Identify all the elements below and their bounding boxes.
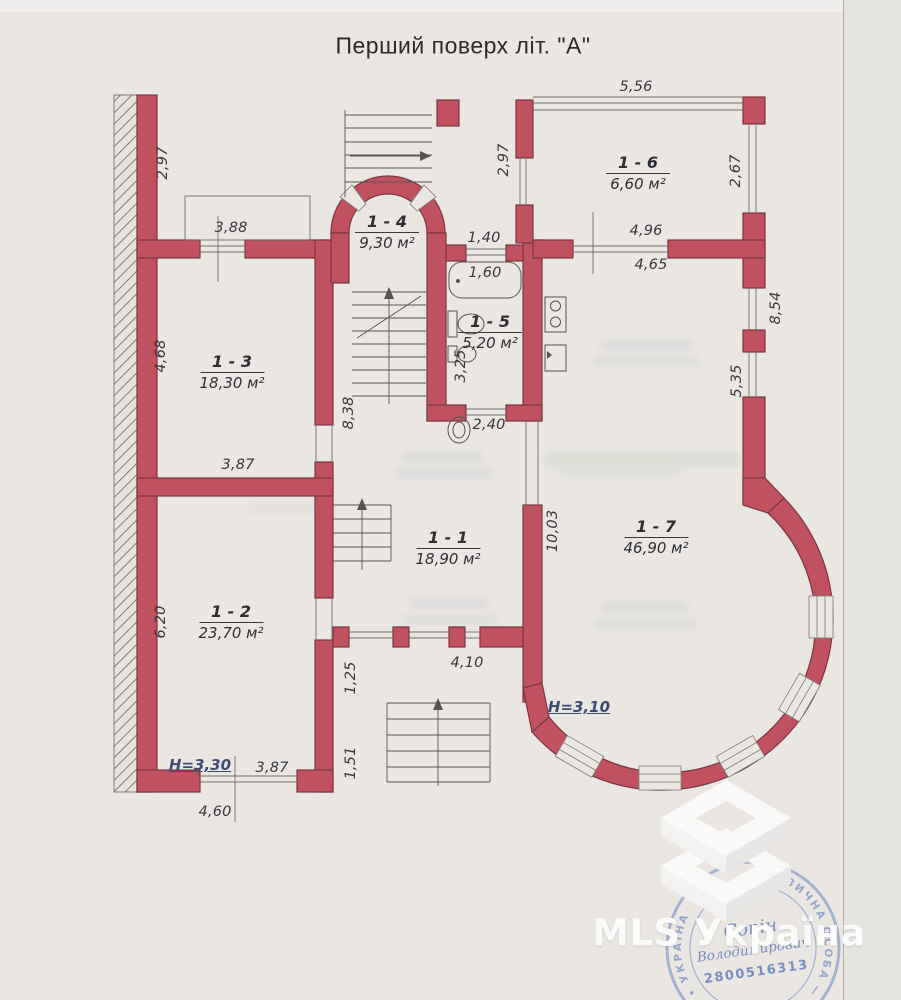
room-number: 1 - 5 <box>458 312 522 333</box>
dim-8-38: 8,38 <box>341 396 357 429</box>
room-number: 1 - 6 <box>606 153 670 174</box>
room-label-1-3: 1 - 3 18,30 м² <box>199 352 264 392</box>
floor-plan-page: • ФІЗИЧНА ОСОБА — ПІДПРИЄМЕЦЬ • УКРАЇНА … <box>0 0 901 1000</box>
room-number: 1 - 3 <box>200 352 264 373</box>
dim-2-97-left: 2,97 <box>155 146 171 179</box>
dim-4-60: 4,60 <box>198 804 231 820</box>
dim-4-10: 4,10 <box>450 655 483 671</box>
walls <box>137 95 833 792</box>
watermark-brand: MLS Україна <box>592 912 866 955</box>
kitchen-sink-icon <box>545 345 566 371</box>
room-label-1-5: 1 - 5 5,20 м² <box>458 312 522 352</box>
entrance-steps <box>387 698 490 786</box>
paper-top-strip <box>0 0 901 12</box>
dim-8-54: 8,54 <box>768 291 784 324</box>
room-label-1-4: 1 - 4 9,30 м² <box>355 212 419 252</box>
room-number: 1 - 4 <box>355 212 419 233</box>
room-area: 18,90 м² <box>415 550 480 568</box>
room-label-1-7: 1 - 7 46,90 м² <box>623 517 688 557</box>
dim-3-87-lower: 3,87 <box>255 760 288 776</box>
dim-1-51: 1,51 <box>343 746 359 779</box>
room-area: 18,30 м² <box>199 374 264 392</box>
room-area: 23,70 м² <box>198 624 263 642</box>
dim-2-67: 2,67 <box>728 154 744 187</box>
hall-mini-stair <box>333 498 391 570</box>
room-number: 1 - 7 <box>624 517 688 538</box>
dim-5-35: 5,35 <box>729 364 745 397</box>
dim-4-68: 4,68 <box>153 339 169 372</box>
dim-6-20: 6,20 <box>153 605 169 638</box>
dim-1-60-bathtub: 1,60 <box>468 265 501 281</box>
dim-2-97-balcony: 2,97 <box>496 143 512 176</box>
room-label-1-2: 1 - 2 23,70 м² <box>198 602 263 642</box>
stove-icon <box>545 297 566 332</box>
dim-3-87-upper: 3,87 <box>221 457 254 473</box>
room-label-1-6: 1 - 6 6,60 м² <box>606 153 670 193</box>
dim-1-40: 1,40 <box>467 230 500 246</box>
hatched-adjacent-wall <box>114 95 137 792</box>
room-area: 9,30 м² <box>355 234 419 252</box>
dim-3-25: 3,25 <box>453 349 469 382</box>
dim-2-40: 2,40 <box>472 417 505 433</box>
height-mark-left: H=3,30 <box>169 756 231 774</box>
room-area: 46,90 м² <box>623 539 688 557</box>
dim-4-96: 4,96 <box>629 223 662 239</box>
floor-plan-drawing: • ФІЗИЧНА ОСОБА — ПІДПРИЄМЕЦЬ • УКРАЇНА … <box>0 0 901 1000</box>
room-label-1-1: 1 - 1 18,90 м² <box>415 528 480 568</box>
windows-and-openings <box>200 103 756 782</box>
dim-1-25: 1,25 <box>343 661 359 694</box>
room-number: 1 - 1 <box>416 528 480 549</box>
paper-edge <box>843 0 901 1000</box>
dim-3-88: 3,88 <box>214 220 247 236</box>
page-title: Перший поверх літ. "А" <box>335 33 590 60</box>
dim-5-56: 5,56 <box>619 79 652 95</box>
interior-stair-1-4 <box>352 287 426 404</box>
dim-10-03: 10,03 <box>545 510 561 553</box>
dim-4-65: 4,65 <box>634 257 667 273</box>
room-number: 1 - 2 <box>199 602 263 623</box>
height-mark-right: H=3,10 <box>548 698 610 716</box>
room-area: 6,60 м² <box>606 175 670 193</box>
